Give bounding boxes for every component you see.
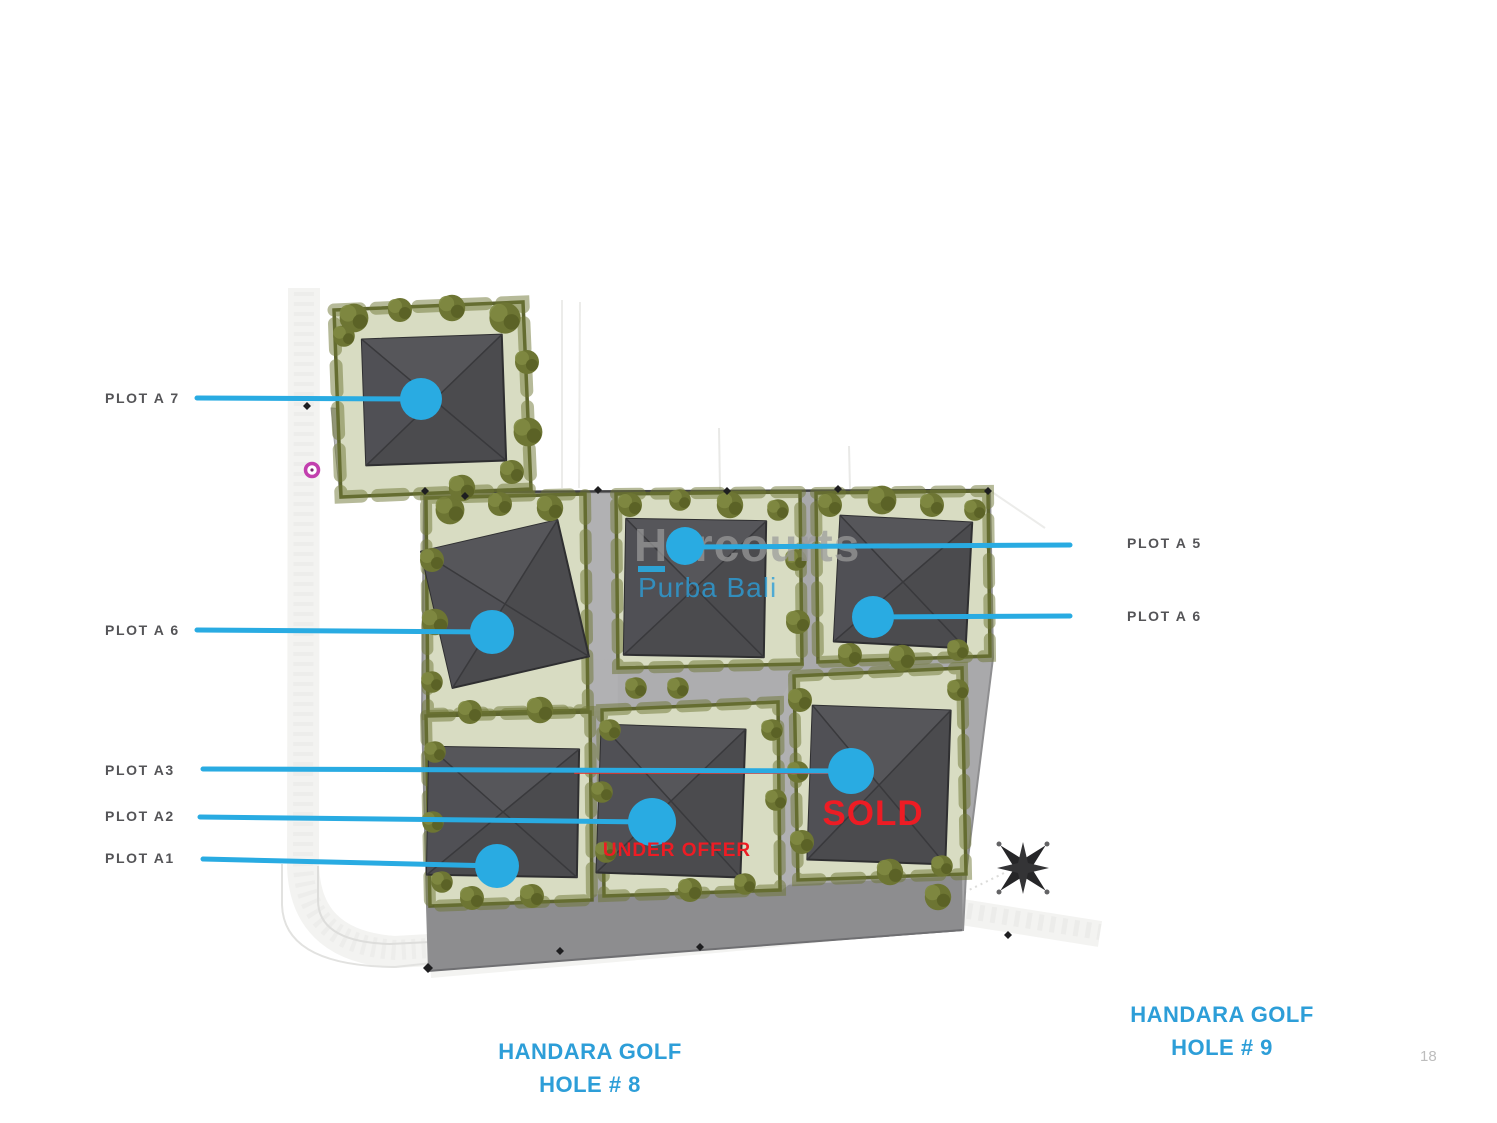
plot-a7 [331,295,542,501]
building-a1 [427,747,579,878]
building-a6-left [421,520,589,688]
status-sold: SOLD [812,794,934,834]
slide: Harcourts Purba Bali PLOT A 7 PLOT A 6 P… [0,0,1497,1123]
status-under-offer: UNDER OFFER [594,840,760,862]
caption-hole-8-line1: HANDARA GOLF [440,1035,740,1068]
building-a3 [807,706,950,865]
caption-hole-9-line1: HANDARA GOLF [1072,998,1372,1031]
plot-a5-label: PLOT A 5 [1127,535,1202,551]
plot-a3-label: PLOT A3 [105,762,175,778]
plot-a1-label: PLOT A1 [105,850,175,866]
caption-hole-8-line2: HOLE # 8 [440,1068,740,1101]
page-number: 18 [1420,1048,1437,1065]
plot-a7-label: PLOT A 7 [105,390,180,406]
compass-rose-icon [978,823,1069,914]
magenta-gate-marker [306,464,319,477]
caption-hole-9-line2: HOLE # 9 [1072,1031,1372,1064]
plot-a6-left-label: PLOT A 6 [105,622,180,638]
caption-hole-8: HANDARA GOLF HOLE # 8 [440,1035,740,1101]
caption-hole-9: HANDARA GOLF HOLE # 9 [1072,998,1372,1064]
plot-a6-right-label: PLOT A 6 [1127,608,1202,624]
plot-a2-label: PLOT A2 [105,808,175,824]
building-a7 [362,335,506,466]
watermark-brand: Harcourts [634,518,860,572]
watermark-subbrand: Purba Bali [638,572,777,604]
